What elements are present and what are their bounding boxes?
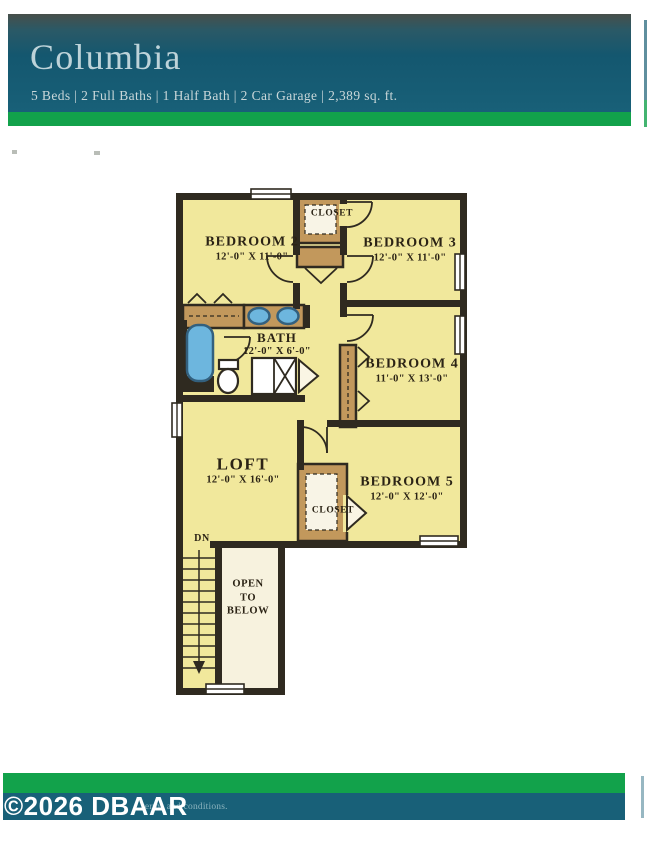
room-label-bedroom-5: BEDROOM 5 12'-0" X 12'-0"	[360, 474, 453, 503]
room-name: LOFT	[217, 455, 270, 475]
closet-label-lower: CLOSET	[312, 505, 354, 516]
flyer-page: Columbia 5 Beds | 2 Full Baths | 1 Half …	[0, 0, 650, 848]
room-label-bedroom-3: BEDROOM 3 12'-0" X 11'-0"	[363, 235, 456, 264]
closet-label-upper: CLOSET	[311, 208, 353, 219]
room-dims: 12'-0" X 12'-0"	[370, 491, 443, 504]
room-label-bedroom-2: BEDROOM 2 12'-0" X 11'-0"	[205, 234, 298, 263]
room-name: BEDROOM 3	[363, 235, 456, 252]
room-dims: 11'-0" X 13'-0"	[376, 373, 449, 386]
room-label-bedroom-4: BEDROOM 4 11'-0" X 13'-0"	[365, 356, 458, 385]
open-to-below-label: OPEN TO BELOW	[227, 578, 269, 619]
shower	[252, 358, 296, 394]
toilet	[218, 360, 238, 393]
bathtub	[187, 325, 213, 381]
room-dims: 12'-0" X 6'-0"	[243, 346, 311, 359]
room-name: BATH	[257, 330, 297, 346]
stairs-dn-label: DN	[194, 533, 210, 545]
room-name: BEDROOM 4	[365, 356, 458, 373]
room-label-loft: LOFT 12'-0" X 16'-0"	[206, 455, 279, 488]
room-dims: 12'-0" X 11'-0"	[216, 251, 289, 264]
room-dims: 12'-0" X 11'-0"	[374, 252, 447, 265]
room-name: BEDROOM 5	[360, 474, 453, 491]
room-label-bath: BATH 12'-0" X 6'-0"	[243, 330, 311, 358]
floorplan-drawing	[0, 0, 650, 848]
room-name: BEDROOM 2	[205, 234, 298, 251]
footer-green-band	[3, 773, 625, 793]
room-dims: 12'-0" X 16'-0"	[206, 475, 279, 488]
copyright-text: ©2026 DBAAR	[4, 791, 188, 822]
